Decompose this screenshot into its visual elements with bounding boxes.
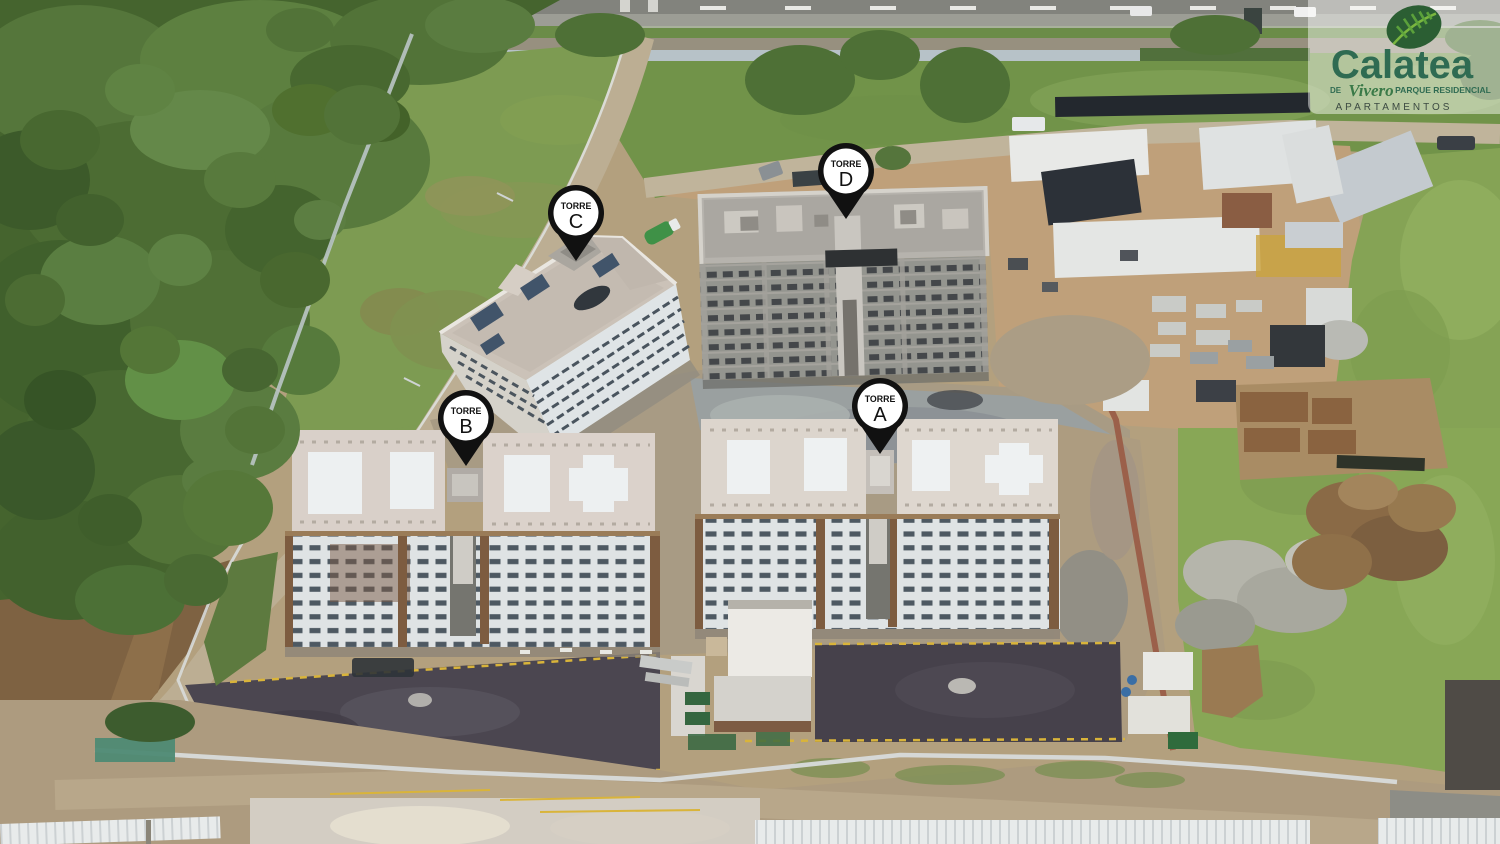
svg-text:Vivero: Vivero <box>1348 81 1393 100</box>
svg-text:PARQUE RESIDENCIAL: PARQUE RESIDENCIAL <box>1395 85 1491 95</box>
svg-text:D: D <box>839 169 853 191</box>
svg-text:TORRE: TORRE <box>865 394 896 404</box>
svg-text:TORRE: TORRE <box>831 159 862 169</box>
svg-text:B: B <box>459 416 472 438</box>
svg-text:C: C <box>569 211 583 233</box>
svg-text:TORRE: TORRE <box>561 201 592 211</box>
svg-text:TORRE: TORRE <box>451 406 482 416</box>
svg-text:DE: DE <box>1330 86 1342 95</box>
svg-text:A: A <box>873 404 887 426</box>
svg-text:APARTAMENTOS: APARTAMENTOS <box>1336 102 1453 113</box>
